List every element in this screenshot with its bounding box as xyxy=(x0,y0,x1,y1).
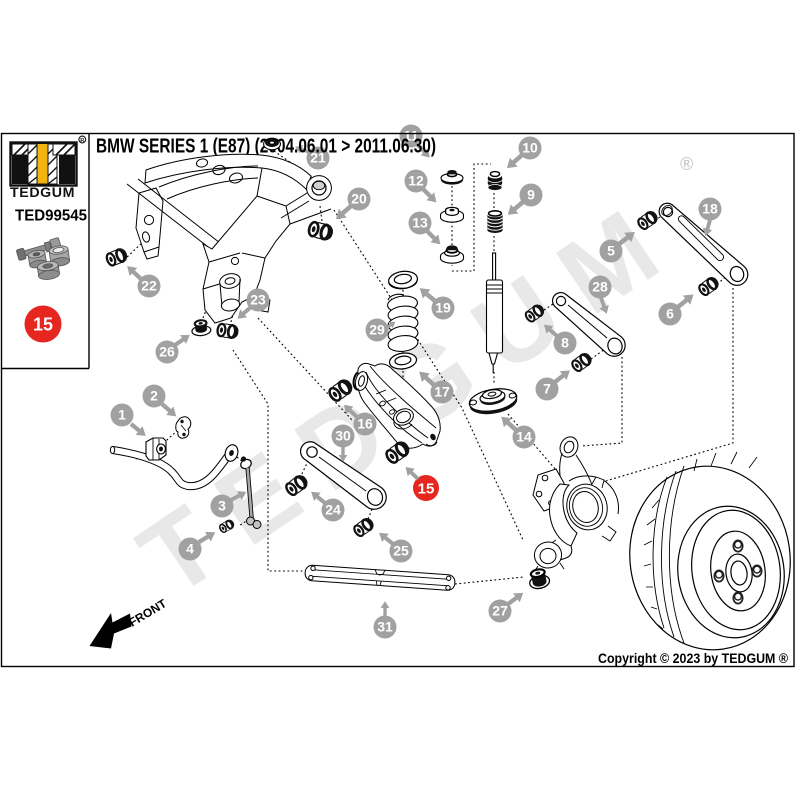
svg-text:Copyright © 2023 by TEDGUM ®: Copyright © 2023 by TEDGUM ® xyxy=(598,651,788,666)
svg-text:22: 22 xyxy=(141,278,157,294)
svg-text:3: 3 xyxy=(218,498,226,514)
svg-text:23: 23 xyxy=(250,292,266,308)
svg-text:30: 30 xyxy=(335,428,351,444)
svg-text:6: 6 xyxy=(666,306,674,322)
svg-text:9: 9 xyxy=(527,187,535,203)
svg-text:13: 13 xyxy=(412,215,428,231)
svg-text:20: 20 xyxy=(351,191,367,207)
svg-text:25: 25 xyxy=(393,543,409,559)
svg-text:31: 31 xyxy=(377,619,393,635)
svg-text:®: ® xyxy=(680,154,693,174)
svg-text:19: 19 xyxy=(435,300,451,316)
svg-text:17: 17 xyxy=(434,384,450,400)
svg-text:15: 15 xyxy=(33,315,53,335)
svg-text:R: R xyxy=(80,138,84,144)
svg-text:26: 26 xyxy=(159,344,175,360)
svg-text:27: 27 xyxy=(492,603,508,619)
svg-text:12: 12 xyxy=(408,173,424,189)
svg-text:4: 4 xyxy=(186,541,194,557)
svg-text:14: 14 xyxy=(516,429,532,445)
svg-text:2: 2 xyxy=(150,388,158,404)
svg-text:8: 8 xyxy=(561,335,569,351)
svg-text:1: 1 xyxy=(118,407,126,423)
svg-text:5: 5 xyxy=(607,243,615,259)
svg-text:29: 29 xyxy=(369,322,385,338)
svg-text:28: 28 xyxy=(592,279,608,295)
svg-text:24: 24 xyxy=(325,502,341,518)
svg-text:16: 16 xyxy=(357,416,373,432)
svg-text:TED99545: TED99545 xyxy=(15,208,87,225)
svg-text:18: 18 xyxy=(702,201,718,217)
svg-text:15: 15 xyxy=(418,481,435,498)
svg-text:7: 7 xyxy=(543,381,551,397)
svg-text:10: 10 xyxy=(522,140,538,156)
svg-text:TEDGUM: TEDGUM xyxy=(10,185,75,201)
